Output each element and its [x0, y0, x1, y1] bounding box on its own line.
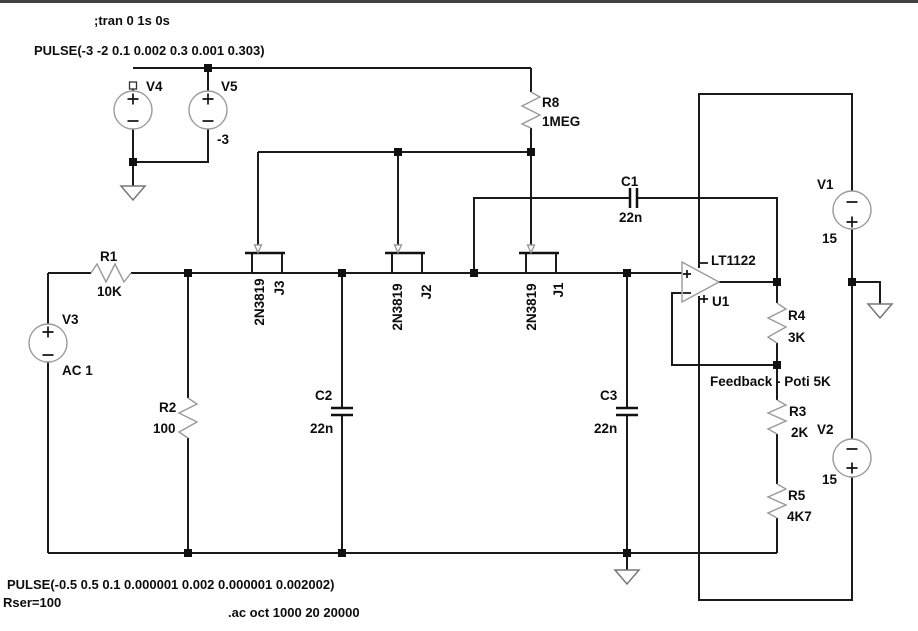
resistor-r5-body[interactable] — [768, 484, 786, 518]
junction-dot — [394, 148, 402, 156]
r1-value-label[interactable]: 10K — [97, 284, 122, 299]
c3-value-label[interactable]: 22n — [594, 421, 617, 436]
junction-dot — [773, 361, 781, 369]
junction-dot — [338, 269, 346, 277]
j1-model-label[interactable]: 2N3819 — [524, 283, 539, 330]
j2-model-label[interactable]: 2N3819 — [390, 283, 405, 330]
r2-name-label[interactable]: R2 — [159, 400, 176, 415]
u1-name-label[interactable]: U1 — [712, 294, 730, 309]
ground-icon[interactable] — [615, 570, 639, 584]
v2-name-label[interactable]: V2 — [817, 422, 834, 437]
wire — [852, 282, 880, 304]
ground-icon[interactable] — [121, 186, 145, 200]
r2-value-label[interactable]: 100 — [153, 421, 176, 436]
vplus-supply-mark — [700, 295, 708, 303]
junction-dot — [773, 278, 781, 286]
jfet-gate-arrow-icon — [255, 245, 262, 253]
c1-value-label[interactable]: 22n — [619, 210, 642, 225]
capacitor-c2[interactable] — [331, 408, 353, 415]
r4-name-label[interactable]: R4 — [788, 308, 806, 323]
jfet-j1[interactable] — [519, 245, 559, 253]
c3-name-label[interactable]: C3 — [600, 388, 618, 403]
junction-dot — [623, 269, 631, 277]
voltage-source-v3[interactable] — [29, 324, 67, 362]
r5-name-label[interactable]: R5 — [788, 488, 806, 503]
r5-value-label[interactable]: 4K7 — [787, 509, 812, 524]
r8-value-label[interactable]: 1MEG — [542, 114, 580, 129]
schematic-canvas[interactable]: ;tran 0 1s 0s PULSE(-3 -2 0.1 0.002 0.3 … — [0, 0, 918, 631]
voltage-source-v5[interactable] — [189, 91, 227, 129]
junction-dots — [129, 64, 856, 557]
capacitor-c1[interactable] — [630, 188, 637, 208]
r3-name-label[interactable]: R3 — [789, 404, 807, 419]
jfet-gate-arrow-icon — [395, 245, 402, 253]
pulse-bottom-directive[interactable]: PULSE(-0.5 0.5 0.1 0.000001 0.002 0.0000… — [7, 577, 334, 592]
wire — [638, 198, 777, 282]
resistor-r3-body[interactable] — [768, 400, 786, 434]
ground-icon[interactable] — [868, 304, 892, 318]
r8-name-label[interactable]: R8 — [542, 95, 560, 110]
v3-name-label[interactable]: V3 — [62, 312, 79, 327]
r4-value-label[interactable]: 3K — [788, 330, 806, 345]
j3-model-label[interactable]: 2N3819 — [252, 278, 267, 325]
voltage-source-v1[interactable] — [833, 191, 871, 229]
r3-value-label[interactable]: 2K — [791, 425, 809, 440]
junction-dot — [184, 269, 192, 277]
u1-model-label[interactable]: LT1122 — [711, 253, 756, 268]
junction-dot — [470, 269, 478, 277]
j3-name-label[interactable]: J3 — [272, 280, 287, 296]
feedback-note-label[interactable]: Feedback - Poti 5K — [710, 374, 831, 389]
c2-value-label[interactable]: 22n — [310, 421, 333, 436]
v4-name-label[interactable]: V4 — [146, 79, 163, 94]
junction-dot — [338, 549, 346, 557]
component-labels: V4 V5 -3 V3 AC 1 V1 15 V2 15 R1 10K R2 1… — [62, 79, 838, 524]
wire — [474, 198, 629, 273]
v1-name-label[interactable]: V1 — [817, 177, 834, 192]
c2-name-label[interactable]: C2 — [315, 388, 332, 403]
ac-directive[interactable]: .ac oct 1000 20 20000 — [228, 605, 360, 620]
wire — [133, 129, 208, 162]
j2-name-label[interactable]: J2 — [419, 284, 434, 299]
unconnected-pin-square — [130, 82, 137, 89]
jfet-j3[interactable] — [245, 245, 285, 253]
v3-value-label[interactable]: AC 1 — [62, 363, 93, 378]
junction-dot — [184, 549, 192, 557]
junction-dot — [848, 278, 856, 286]
resistor-r4-body[interactable] — [768, 303, 786, 343]
jfet-j2[interactable] — [385, 245, 425, 253]
junction-dot — [527, 148, 535, 156]
j1-name-label[interactable]: J1 — [551, 282, 566, 298]
resistor-r2-body[interactable] — [179, 398, 197, 438]
resistor-r8-body[interactable] — [522, 92, 540, 128]
v1-value-label[interactable]: 15 — [822, 231, 838, 246]
c1-name-label[interactable]: C1 — [621, 174, 639, 189]
jfet-gate-arrow-icon — [528, 245, 535, 253]
voltage-source-v2[interactable] — [833, 439, 871, 477]
v5-value-label[interactable]: -3 — [217, 132, 229, 147]
junction-dot — [204, 64, 212, 72]
v2-value-label[interactable]: 15 — [822, 472, 838, 487]
schematic-svg: ;tran 0 1s 0s PULSE(-3 -2 0.1 0.002 0.3 … — [0, 0, 918, 631]
tran-directive[interactable]: ;tran 0 1s 0s — [94, 13, 170, 28]
junction-dot — [129, 158, 137, 166]
r1-name-label[interactable]: R1 — [100, 249, 118, 264]
pulse-top-directive[interactable]: PULSE(-3 -2 0.1 0.002 0.3 0.001 0.303) — [34, 43, 265, 58]
v5-name-label[interactable]: V5 — [221, 79, 238, 94]
wires — [48, 68, 880, 600]
junction-dot — [623, 549, 631, 557]
directive-labels: ;tran 0 1s 0s PULSE(-3 -2 0.1 0.002 0.3 … — [3, 13, 360, 620]
rser-directive[interactable]: Rser=100 — [3, 595, 61, 610]
resistor-r1-body[interactable] — [91, 264, 131, 282]
capacitor-c3[interactable] — [616, 408, 638, 415]
